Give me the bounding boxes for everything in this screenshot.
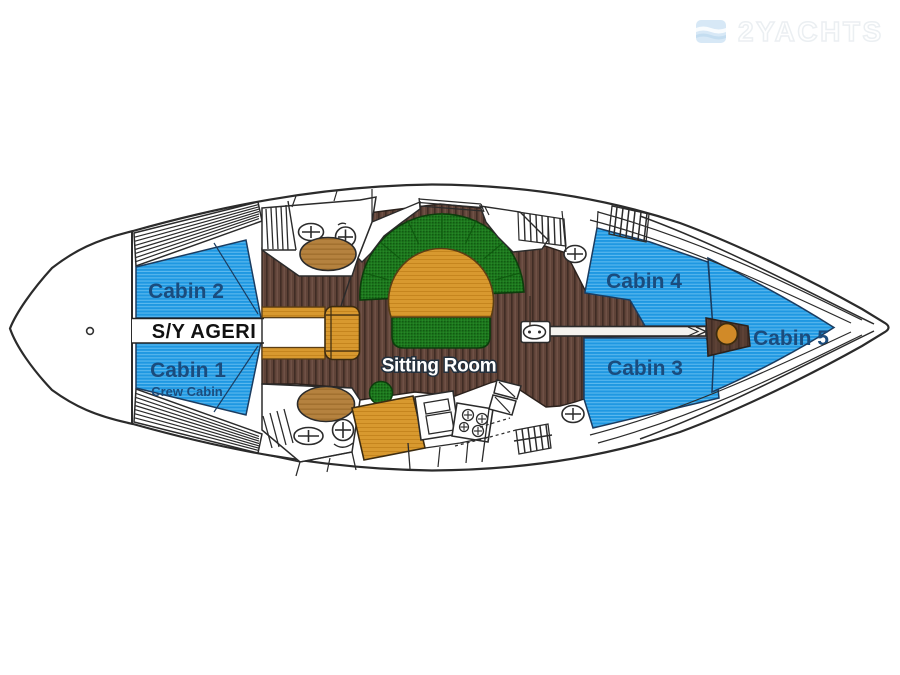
- svg-text:Cabin 4: Cabin 4: [606, 270, 682, 293]
- svg-text:Cabin 2: Cabin 2: [148, 280, 224, 303]
- svg-text:Cabin 1: Cabin 1: [150, 359, 226, 382]
- svg-text:Cabin 3: Cabin 3: [607, 357, 683, 380]
- svg-text:Cabin 5: Cabin 5: [753, 327, 829, 350]
- svg-text:2YACHTS: 2YACHTS: [738, 16, 884, 47]
- svg-text:Sitting Room: Sitting Room: [382, 356, 497, 377]
- svg-text:Crew Cabin: Crew Cabin: [151, 384, 223, 399]
- svg-text:S/Y AGERI: S/Y AGERI: [152, 321, 257, 343]
